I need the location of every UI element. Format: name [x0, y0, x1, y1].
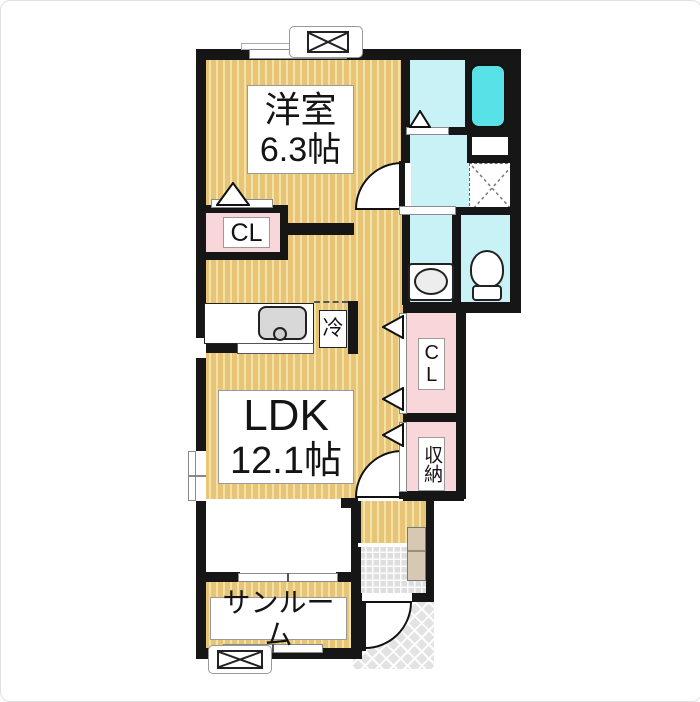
- wall: [196, 572, 240, 582]
- wall: [198, 252, 288, 260]
- ac-x-icon: [309, 33, 347, 51]
- closet-left-text: CL: [231, 219, 263, 247]
- floor-plan: 冷 洋室 6.3帖 LDK 12.1帖 サンルーム CL CL 収納: [0, 0, 700, 702]
- bath-door-track: [406, 127, 449, 135]
- door-swing-yoshitsu-icon: [355, 162, 403, 210]
- shoe-cabinet-divider: [408, 550, 425, 552]
- door-swing-ldk-icon: [355, 450, 403, 498]
- folding-door-bath-icon: [409, 110, 431, 128]
- folding-door-closet-right-icon: [382, 387, 404, 411]
- wall: [348, 301, 358, 354]
- ac-outdoor-unit-bottom-box: [217, 650, 263, 669]
- fridge-space-label: 冷: [319, 310, 347, 348]
- wall: [403, 302, 521, 313]
- wall: [284, 223, 354, 235]
- door-leaf-yoshitsu: [399, 161, 405, 211]
- wall: [456, 313, 466, 499]
- closet-right-label: CL: [418, 338, 445, 390]
- ldk-name: LDK: [243, 391, 329, 440]
- sunroom-label: サンルーム: [210, 597, 347, 640]
- washroom-niche: [472, 137, 508, 157]
- wall: [204, 343, 237, 353]
- washing-machine-pan: [469, 163, 513, 211]
- sunroom-name: サンルーム: [211, 587, 346, 650]
- yoshitsu-name: 洋室: [264, 90, 336, 130]
- toilet-bowl-icon: [470, 250, 504, 288]
- folding-door-closet-right-icon: [382, 315, 404, 339]
- washroom-sliding-door-track: [399, 206, 456, 215]
- ac-x-icon: [219, 652, 261, 667]
- ldk-room-label: LDK 12.1帖: [218, 390, 354, 484]
- kitchen-counter-lip: [237, 343, 314, 354]
- bathtub: [470, 64, 506, 128]
- sunroom-window-tick: [287, 573, 289, 582]
- wall: [510, 49, 521, 313]
- closet-right-text: CL: [420, 342, 442, 386]
- ac-outdoor-unit-top-box: [307, 31, 349, 53]
- folding-door-storage-icon: [382, 423, 404, 447]
- fridge-label-text: 冷: [323, 317, 344, 341]
- wall: [454, 207, 512, 215]
- washbasin-bowl-icon: [414, 268, 448, 295]
- storage-label: 収納: [418, 437, 445, 491]
- wall: [467, 155, 513, 163]
- wall: [403, 413, 461, 422]
- storage-text: 収納: [421, 445, 442, 483]
- yoshitsu-size: 6.3帖: [260, 131, 341, 169]
- toilet-tank-icon: [472, 285, 502, 301]
- window-left-large-tick: [188, 475, 206, 477]
- shoe-cabinet: [407, 527, 426, 581]
- door-leaf-entrance: [360, 601, 366, 651]
- ac-outdoor-unit-top: [289, 26, 363, 58]
- wall: [426, 499, 434, 599]
- ldk-size: 12.1帖: [230, 440, 342, 483]
- door-swing-entrance-icon: [364, 601, 412, 649]
- wall: [447, 127, 513, 135]
- kitchen-faucet-icon: [273, 327, 287, 341]
- yoshitsu-room-label: 洋室 6.3帖: [247, 85, 354, 174]
- washing-machine-pan-x-icon: [470, 164, 514, 212]
- fridge-space-dashed-line: [314, 301, 348, 304]
- washroom-floor: [409, 133, 469, 209]
- closet-left-label: CL: [223, 217, 270, 248]
- wall: [336, 572, 353, 582]
- folding-door-closet-left-icon: [216, 182, 250, 206]
